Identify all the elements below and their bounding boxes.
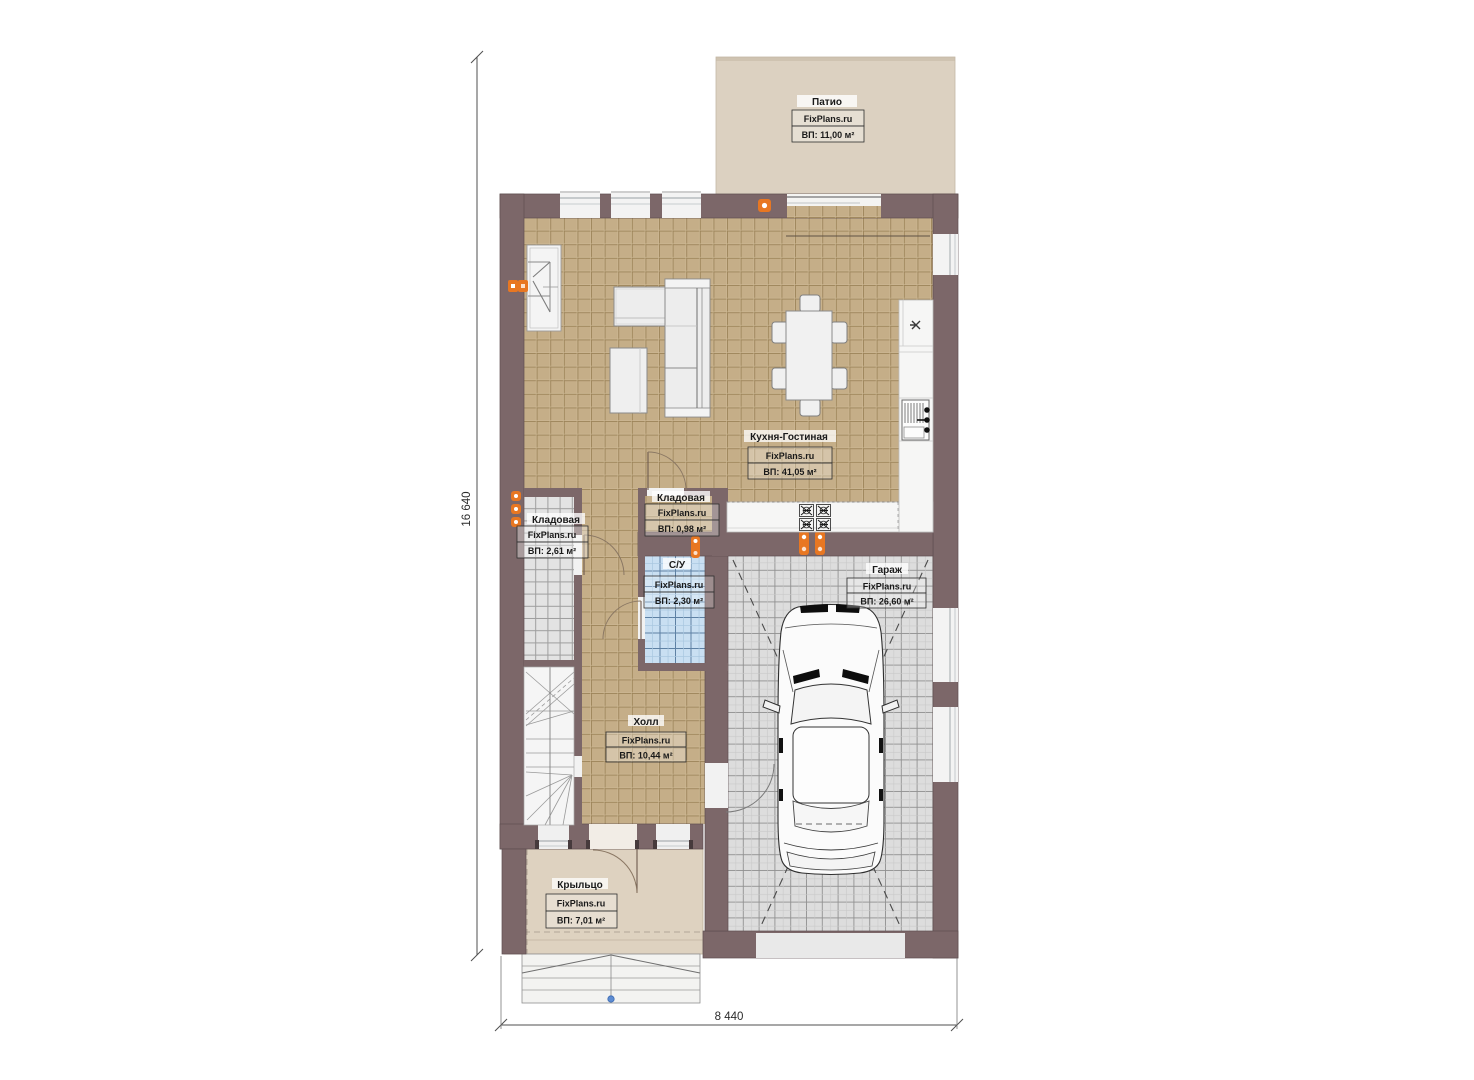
svg-text:Патио: Патио bbox=[812, 97, 842, 108]
svg-text:FixPlans.ru: FixPlans.ru bbox=[557, 899, 606, 909]
svg-text:FixPlans.ru: FixPlans.ru bbox=[766, 451, 815, 461]
svg-text:С/У: С/У bbox=[669, 560, 686, 571]
svg-text:ВП: 0,98 м²: ВП: 0,98 м² bbox=[658, 524, 706, 534]
svg-text:FixPlans.ru: FixPlans.ru bbox=[622, 736, 671, 746]
svg-text:ВП: 11,00 м²: ВП: 11,00 м² bbox=[802, 130, 855, 140]
svg-text:FixPlans.ru: FixPlans.ru bbox=[863, 582, 912, 592]
svg-text:ВП: 7,01 м²: ВП: 7,01 м² bbox=[557, 916, 605, 926]
svg-text:ВП: 10,44 м²: ВП: 10,44 м² bbox=[619, 751, 672, 761]
svg-text:Кухня-Гостиная: Кухня-Гостиная bbox=[750, 432, 828, 443]
svg-text:ВП: 2,30 м²: ВП: 2,30 м² bbox=[655, 596, 703, 606]
svg-text:FixPlans.ru: FixPlans.ru bbox=[655, 580, 704, 590]
svg-text:FixPlans.ru: FixPlans.ru bbox=[658, 508, 707, 518]
svg-text:8 440: 8 440 bbox=[715, 1011, 744, 1023]
svg-text:Кладовая: Кладовая bbox=[532, 515, 580, 526]
svg-text:16 640: 16 640 bbox=[461, 491, 473, 526]
svg-text:ВП: 41,05 м²: ВП: 41,05 м² bbox=[763, 467, 816, 477]
svg-text:FixPlans.ru: FixPlans.ru bbox=[528, 530, 577, 540]
svg-text:Холл: Холл bbox=[633, 717, 658, 728]
svg-text:ВП: 2,61 м²: ВП: 2,61 м² bbox=[528, 546, 576, 556]
svg-text:Гараж: Гараж bbox=[872, 565, 903, 576]
svg-text:Крыльцо: Крыльцо bbox=[557, 880, 603, 891]
svg-text:ВП: 26,60 м²: ВП: 26,60 м² bbox=[860, 597, 913, 607]
svg-text:FixPlans.ru: FixPlans.ru bbox=[804, 114, 853, 124]
svg-text:Кладовая: Кладовая bbox=[657, 493, 705, 504]
